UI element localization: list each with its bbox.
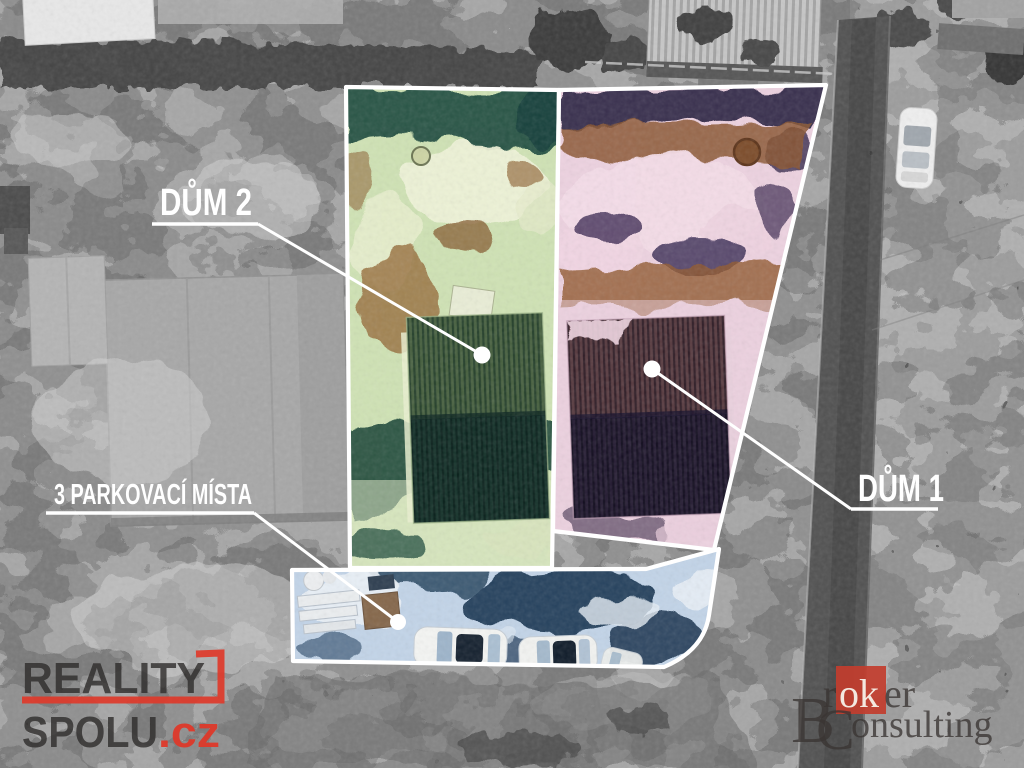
consulting-letter-c: C: [816, 697, 855, 762]
consulting-word: onsulting: [851, 704, 992, 746]
leader-dot-parking: [390, 614, 406, 630]
reality-word: REALITY: [22, 654, 205, 703]
label-house2: DŮM 2: [160, 177, 252, 224]
spolu-word: SPOLU: [22, 708, 158, 757]
real-estate-aerial-photo: DŮM 2 DŮM 1 3 PARKOVACÍ MÍSTA REALITY SP…: [0, 0, 1024, 768]
leader-dot-house1: [644, 361, 661, 378]
label-house1: DŮM 1: [858, 463, 944, 510]
cz-tld: .cz: [158, 708, 220, 757]
film-grain: [0, 0, 1024, 768]
leader-dot-house2: [474, 347, 491, 364]
aerial-photo-canvas: DŮM 2 DŮM 1 3 PARKOVACÍ MÍSTA REALITY SP…: [0, 0, 1024, 768]
label-parking: 3 PARKOVACÍ MÍSTA: [54, 477, 252, 511]
